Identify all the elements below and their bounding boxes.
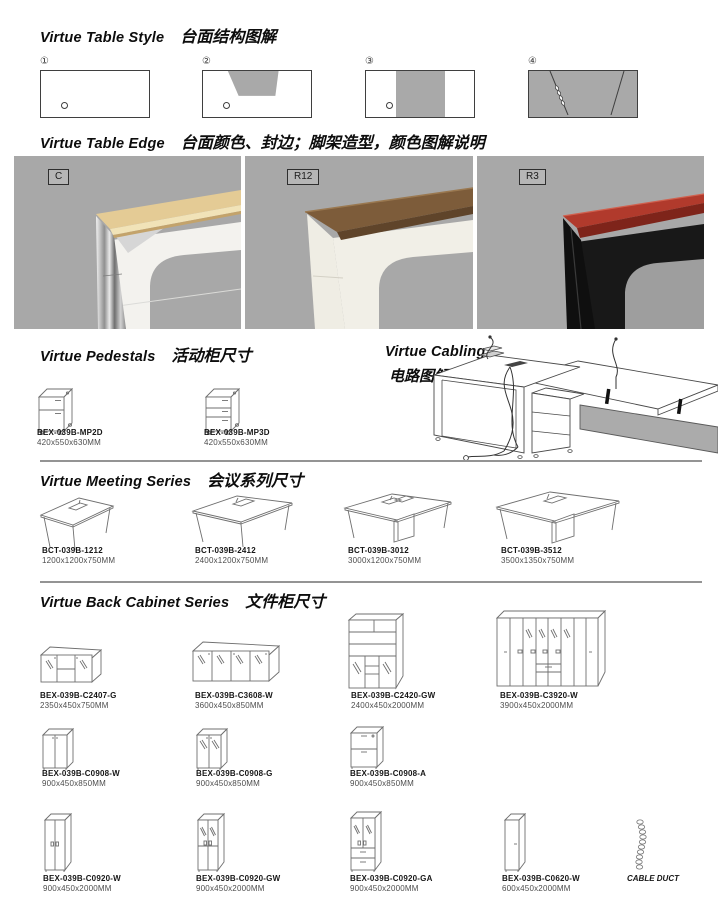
tabletop-diagram-notch: [202, 70, 312, 118]
circled-number-icon: ①: [40, 55, 150, 68]
dimensions: 900x450x850MM: [196, 779, 346, 789]
pedestal-2-label: BEX-039B-MP3D 420x550x630MM: [204, 428, 354, 448]
cabinet-c0920gw-drawing: [195, 810, 227, 876]
meeting-2-label: BCT-039B-2412 2400x1200x750MM: [195, 546, 345, 566]
model-code: BEX-039B-C0920-GA: [350, 874, 500, 884]
model-code: BEX-039B-C3608-W: [195, 691, 345, 701]
cabinet-c2420-drawing: [346, 610, 406, 694]
edge-code-badge: C: [48, 169, 69, 185]
dimensions: 2400x450x2000MM: [351, 701, 501, 711]
meeting-title-en: Virtue Meeting Series: [40, 474, 191, 490]
cabinet-c3608-drawing: [190, 632, 282, 690]
dimensions: 2400x1200x750MM: [195, 556, 345, 566]
cabling-diagram: [420, 335, 718, 463]
meeting-table-3012-drawing: [342, 490, 454, 552]
model-code: BEX-039B-C0908-A: [350, 769, 500, 779]
catalog-page: Virtue Table Style 台面结构图解 ① ② ③ ④: [0, 0, 720, 911]
cabinet-r3c1-label: BEX-039B-C0920-W 900x450x2000MM: [43, 874, 193, 894]
cabinet-r2c2-label: BEX-039B-C0908-G 900x450x850MM: [196, 769, 346, 789]
meeting-table-2412-drawing: [190, 492, 295, 552]
model-code: BCT-039B-2412: [195, 546, 345, 556]
dimensions: 600x450x2000MM: [502, 884, 652, 894]
tabletop-diagram-band: [365, 70, 475, 118]
cabinet-r2c1-label: BEX-039B-C0908-W 900x450x850MM: [42, 769, 192, 789]
meeting-table-1212-drawing: [38, 494, 116, 552]
model-code: BEX-039B-C0908-G: [196, 769, 346, 779]
dimensions: 420x550x630MM: [204, 438, 354, 448]
pedestal-1-label: BEX-039B-MP2D 420x550x630MM: [37, 428, 187, 448]
model-code: BEX-039B-C2420-GW: [351, 691, 501, 701]
pedestals-title-en: Virtue Pedestals: [40, 349, 156, 365]
dimensions: 3500x1350x750MM: [501, 556, 651, 566]
model-code: BEX-039B-C3920-W: [500, 691, 650, 701]
meeting-4-label: BCT-039B-3512 3500x1350x750MM: [501, 546, 651, 566]
meeting-table-3512-drawing: [494, 488, 622, 552]
grommet-icon: [223, 102, 230, 109]
model-code: BEX-039B-C0908-W: [42, 769, 192, 779]
cabinet-r1c1-label: BEX-039B-C2407-G 2350x450x750MM: [40, 691, 190, 711]
circled-number-icon: ③: [365, 55, 475, 68]
circled-number-icon: ②: [202, 55, 312, 68]
back-cabinet-title-en: Virtue Back Cabinet Series: [40, 595, 229, 611]
cabinet-r1c3-label: BEX-039B-C2420-GW 2400x450x2000MM: [351, 691, 501, 711]
table-style-diagram-3: ③: [365, 55, 475, 118]
dimensions: 900x450x2000MM: [196, 884, 346, 894]
table-edge-title-zh: 台面颜色、封边；脚架造型，颜色图解说明: [181, 129, 485, 153]
cabinet-c2407-drawing: [38, 640, 104, 690]
table-style-diagram-1: ①: [40, 55, 150, 118]
cabinet-c0920ga-drawing: [348, 808, 384, 876]
diagonal-cable-lines: [529, 71, 637, 115]
back-cabinet-heading: Virtue Back Cabinet Series 文件柜尺寸: [40, 588, 325, 612]
model-code: BEX-039B-C0920-W: [43, 874, 193, 884]
meeting-title-zh: 会议系列尺寸: [207, 467, 303, 491]
meeting-1-label: BCT-039B-1212 1200x1200x750MM: [42, 546, 192, 566]
grommet-icon: [61, 102, 68, 109]
dimensions: 900x450x2000MM: [350, 884, 500, 894]
band-shape: [396, 71, 445, 117]
section-divider: [40, 581, 702, 583]
section-divider: [40, 460, 702, 462]
notch-shape: [203, 71, 311, 117]
cabinet-c3920-drawing: [494, 606, 608, 692]
dimensions: 3900x450x2000MM: [500, 701, 650, 711]
cable-duct-label: CABLE DUCT: [627, 874, 720, 884]
dimensions: 900x450x850MM: [350, 779, 500, 789]
cable-duct-drawing: [628, 818, 652, 874]
cabinet-c0908a-drawing: [348, 722, 386, 774]
dimensions: 900x450x2000MM: [43, 884, 193, 894]
table-style-diagram-4: ④: [528, 55, 638, 118]
dimensions: 3600x450x850MM: [195, 701, 345, 711]
cabinet-r1c4-label: BEX-039B-C3920-W 3900x450x2000MM: [500, 691, 650, 711]
tabletop-diagram-plain: [40, 70, 150, 118]
edge-code-badge: R3: [519, 169, 546, 185]
edge-photo-r3: R3: [477, 156, 704, 329]
model-code: BEX-039B-C2407-G: [40, 691, 190, 701]
dimensions: 1200x1200x750MM: [42, 556, 192, 566]
back-cabinet-title-zh: 文件柜尺寸: [245, 588, 325, 612]
grommet-icon: [386, 102, 393, 109]
model-code: BCT-039B-1212: [42, 546, 192, 556]
dimensions: 420x550x630MM: [37, 438, 187, 448]
meeting-3-label: BCT-039B-3012 3000x1200x750MM: [348, 546, 498, 566]
table-style-title-zh: 台面结构图解: [180, 23, 276, 47]
dimensions: 2350x450x750MM: [40, 701, 190, 711]
cabinet-c0908w-drawing: [40, 724, 76, 774]
table-edge-title-en: Virtue Table Edge: [40, 136, 165, 152]
edge-code-badge: R12: [287, 169, 319, 185]
cabinet-c0620w-drawing: [502, 810, 528, 876]
cable-duct-text: CABLE DUCT: [627, 874, 720, 884]
table-style-heading: Virtue Table Style 台面结构图解: [40, 23, 276, 47]
model-code: BEX-039B-MP3D: [204, 428, 354, 438]
table-style-diagram-2: ②: [202, 55, 312, 118]
dimensions: 900x450x850MM: [42, 779, 192, 789]
circled-number-icon: ④: [528, 55, 638, 68]
table-style-title-en: Virtue Table Style: [40, 30, 164, 46]
table-edge-heading: Virtue Table Edge 台面颜色、封边；脚架造型，颜色图解说明: [40, 129, 485, 153]
dimensions: 3000x1200x750MM: [348, 556, 498, 566]
cabinet-r1c2-label: BEX-039B-C3608-W 3600x450x850MM: [195, 691, 345, 711]
pedestals-title-zh: 活动柜尺寸: [172, 342, 252, 366]
model-code: BCT-039B-3512: [501, 546, 651, 556]
cabinet-r3c3-label: BEX-039B-C0920-GA 900x450x2000MM: [350, 874, 500, 894]
cabinet-c0908g-drawing: [194, 724, 230, 774]
model-code: BCT-039B-3012: [348, 546, 498, 556]
edge-photo-r12: R12: [245, 156, 473, 329]
pedestals-heading: Virtue Pedestals 活动柜尺寸: [40, 342, 252, 366]
table-corner-photo-red: [477, 156, 704, 329]
tabletop-diagram-full: [528, 70, 638, 118]
cabinet-r2c3-label: BEX-039B-C0908-A 900x450x850MM: [350, 769, 500, 789]
edge-photo-c: C: [14, 156, 241, 329]
cabinet-r3c2-label: BEX-039B-C0920-GW 900x450x2000MM: [196, 874, 346, 894]
model-code: BEX-039B-MP2D: [37, 428, 187, 438]
meeting-heading: Virtue Meeting Series 会议系列尺寸: [40, 467, 303, 491]
model-code: BEX-039B-C0920-GW: [196, 874, 346, 884]
table-corner-photo-walnut: [245, 156, 473, 329]
cabinet-c0920w-drawing: [42, 810, 74, 876]
